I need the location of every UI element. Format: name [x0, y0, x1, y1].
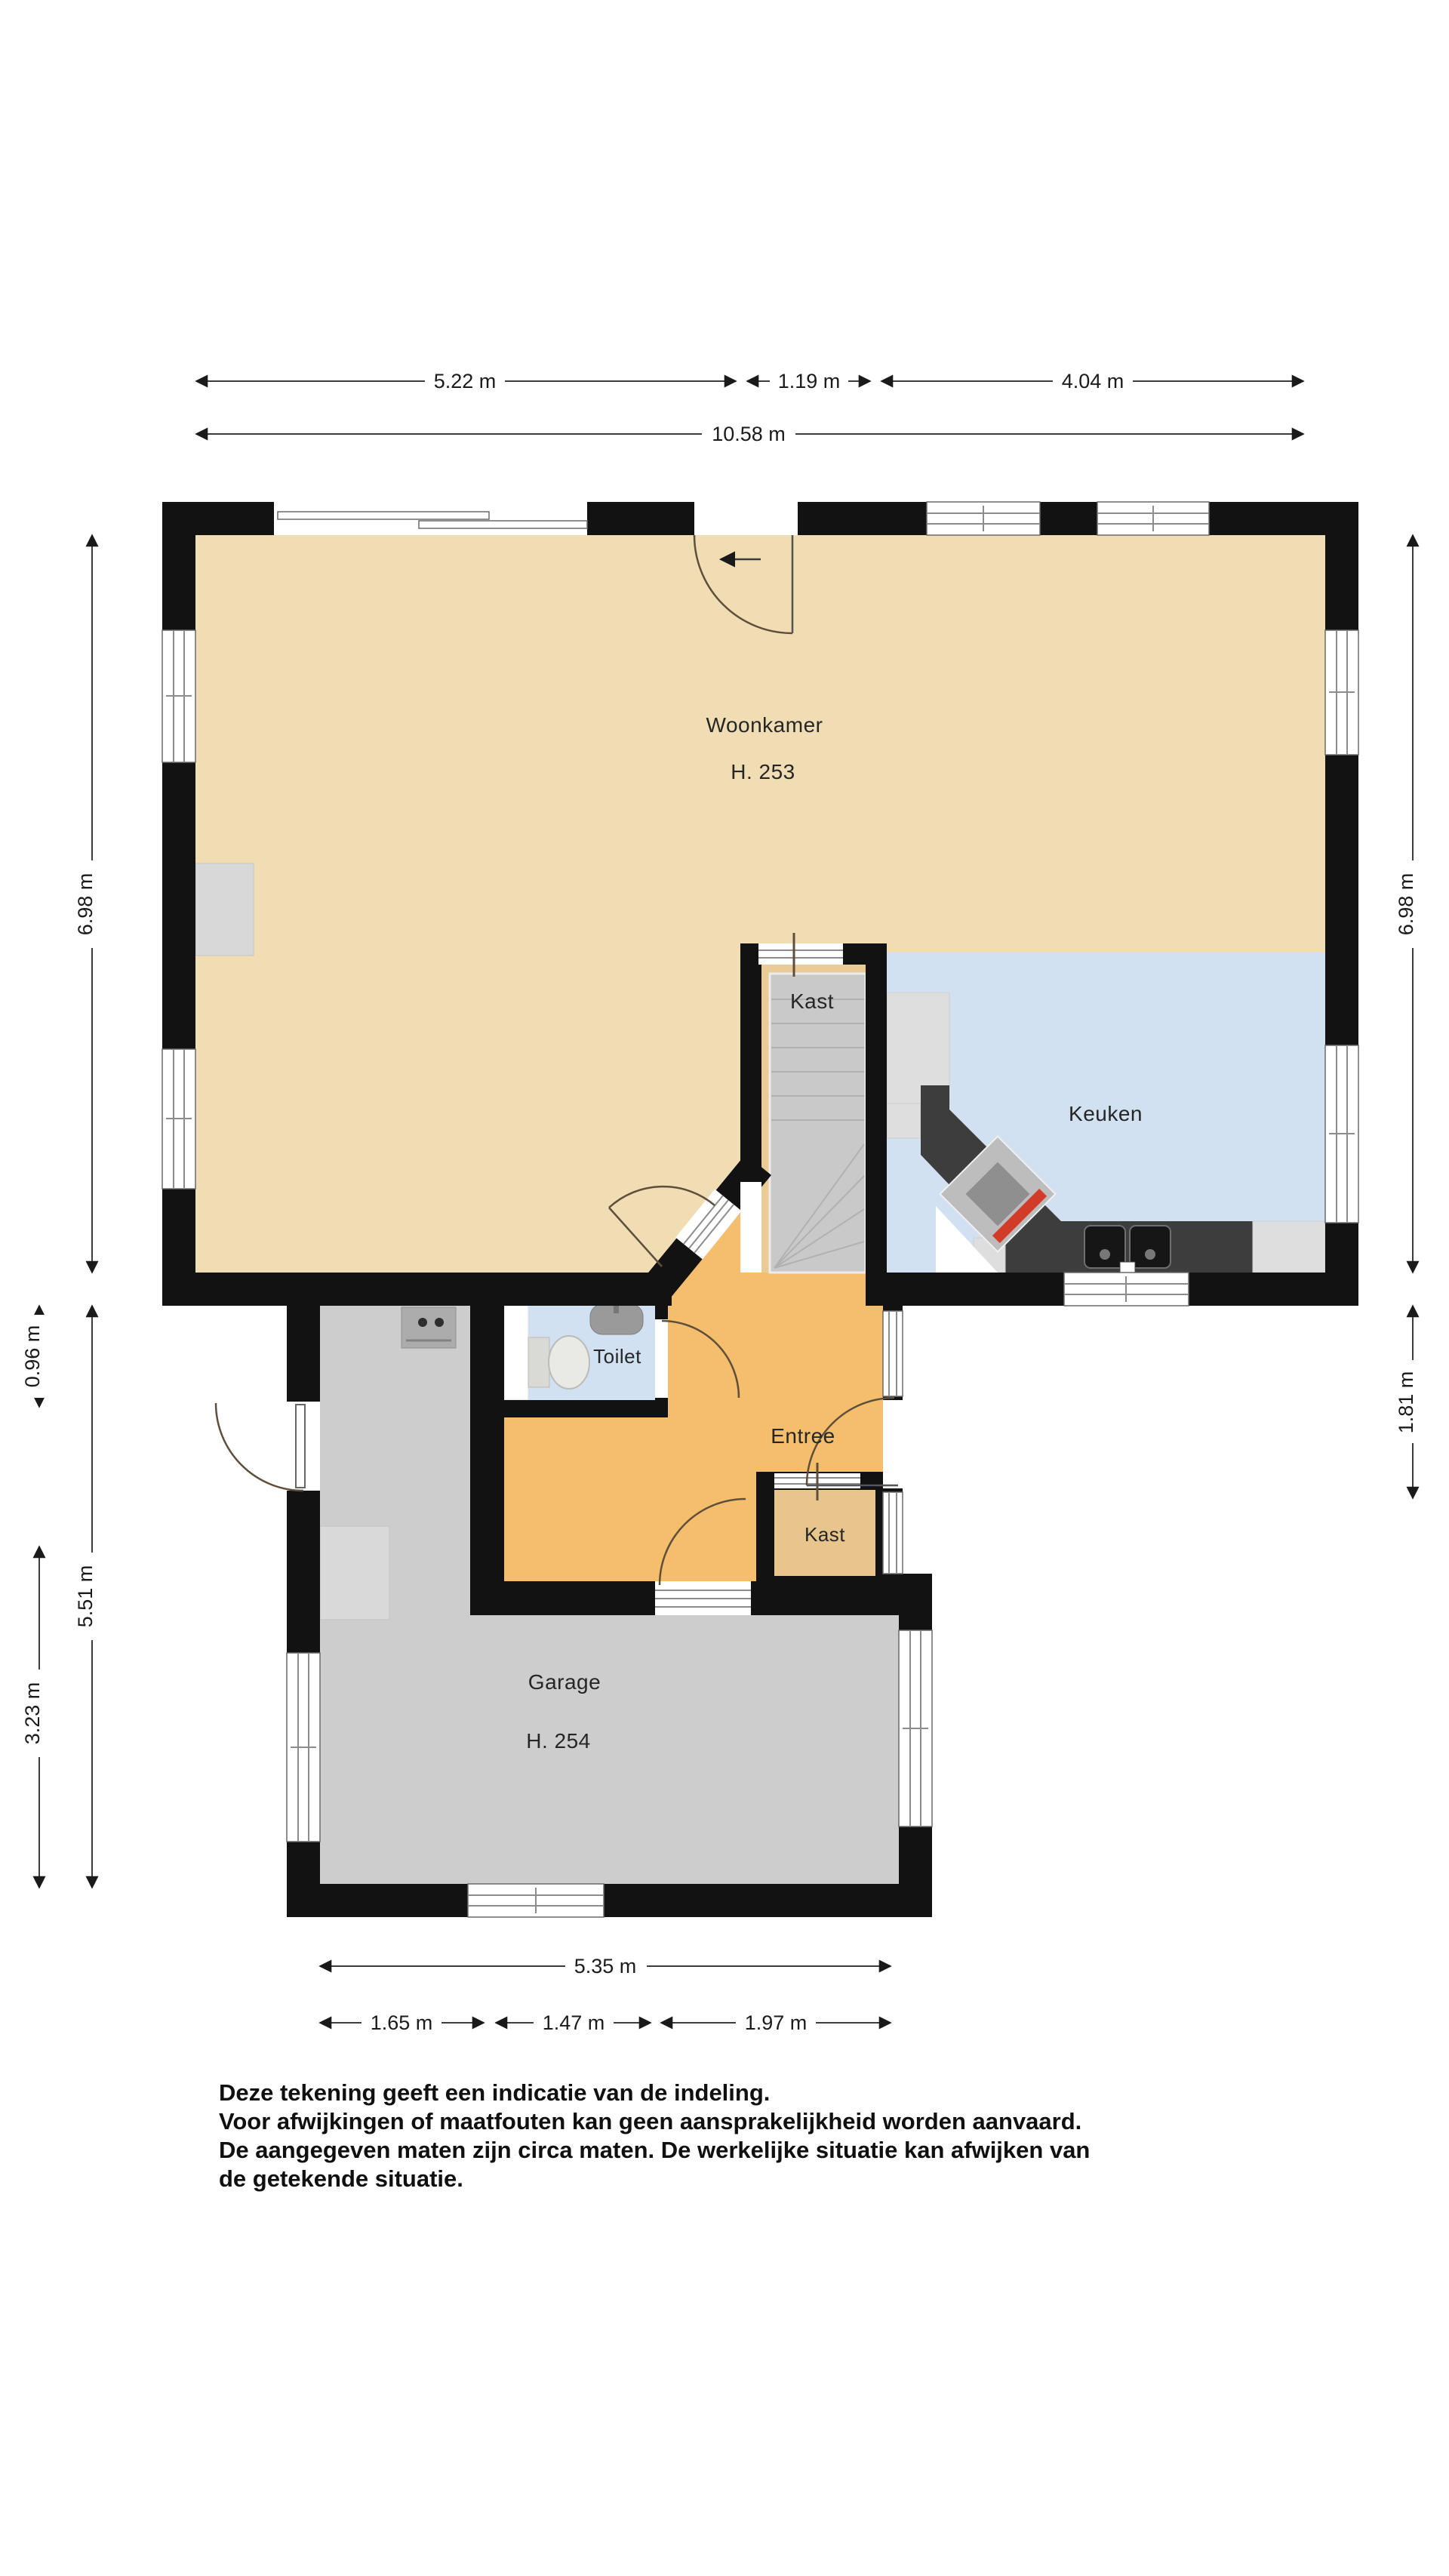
dim-right-upper: 6.98 m — [1395, 535, 1426, 1273]
stair-opening — [740, 1182, 761, 1273]
toilet-side-panel — [504, 1306, 528, 1400]
window-keuken-bottom — [1064, 1273, 1189, 1306]
dim-bottom-3: 1.97 m — [661, 2010, 891, 2036]
window-entree-right-1 — [883, 1311, 903, 1396]
wall-garage-bottom — [287, 1884, 932, 1917]
svg-text:1.97 m: 1.97 m — [745, 2011, 808, 2034]
svg-text:De aangegeven maten zijn circa: De aangegeven maten zijn circa maten. De… — [219, 2137, 1090, 2163]
dim-left-upper: 6.98 m — [74, 535, 105, 1273]
toilet-label: Toilet — [593, 1345, 641, 1368]
floorplan-page: Woonkamer H. 253 Keuken Kast Toilet Entr… — [0, 0, 1449, 2576]
wall-kast-right — [866, 943, 887, 1273]
keuken-label: Keuken — [1069, 1102, 1143, 1125]
dim-left-lower: 5.51 m — [74, 1306, 105, 1888]
fireplace-block — [195, 863, 254, 956]
svg-text:Voor afwijkingen of maatfoute: Voor afwijkingen of maatfouten kan geen … — [219, 2108, 1081, 2134]
svg-text:de getekende situatie.: de getekende situatie. — [219, 2165, 463, 2192]
dim-top-3: 4.04 m — [881, 368, 1303, 394]
dim-left-toilet: 0.96 m — [21, 1306, 52, 1407]
window-top-2 — [1097, 502, 1209, 535]
window-garage-bottom — [468, 1884, 604, 1917]
svg-text:4.04 m: 4.04 m — [1062, 370, 1124, 392]
svg-text:0.96 m: 0.96 m — [21, 1325, 44, 1388]
svg-text:6.98 m: 6.98 m — [74, 873, 97, 936]
kitchen-dishwasher — [1253, 1221, 1325, 1273]
svg-text:10.58 m: 10.58 m — [712, 423, 786, 445]
toilet-icon — [528, 1336, 589, 1389]
wall-kast-onder-bottom — [756, 1576, 899, 1615]
dim-top-2: 1.19 m — [747, 368, 870, 394]
wall-kast-onder-left — [756, 1472, 774, 1581]
dim-top-total: 10.58 m — [196, 421, 1303, 447]
svg-text:1.65 m: 1.65 m — [371, 2011, 433, 2034]
woonkamer-height-label: H. 253 — [731, 760, 795, 783]
door-garage-left — [216, 1402, 320, 1491]
kast-onder-label: Kast — [804, 1523, 845, 1546]
window-left-2 — [162, 1049, 195, 1189]
garage-height-label: H. 254 — [526, 1729, 591, 1753]
kitchen-cabinet-small — [887, 1103, 921, 1138]
window-right-1 — [1325, 630, 1358, 755]
dim-bottom-total: 5.35 m — [320, 1953, 891, 1979]
woonkamer-label: Woonkamer — [706, 713, 823, 737]
disclaimer-text: Deze tekening geeft een indicatie van de… — [219, 2079, 1090, 2192]
stairs — [770, 974, 866, 1273]
wall-toilet-bottom — [470, 1400, 668, 1417]
dim-left-garage: 3.23 m — [21, 1547, 52, 1888]
kast-boven-label: Kast — [790, 989, 834, 1013]
garage-label: Garage — [528, 1670, 601, 1694]
svg-text:1.81 m: 1.81 m — [1395, 1371, 1417, 1434]
svg-text:5.35 m: 5.35 m — [574, 1955, 637, 1977]
floorplan-drawing: Woonkamer H. 253 Keuken Kast Toilet Entr… — [0, 0, 1449, 2576]
window-right-2 — [1325, 1045, 1358, 1223]
svg-text:1.19 m: 1.19 m — [778, 370, 841, 392]
dim-top-1: 5.22 m — [196, 368, 736, 394]
window-entree-right-2 — [883, 1492, 903, 1574]
window-left-1 — [162, 630, 195, 762]
window-garage-left — [287, 1653, 320, 1842]
washer-icon — [401, 1307, 456, 1348]
dim-bottom-1: 1.65 m — [320, 2010, 484, 2036]
svg-text:Deze tekening geeft een indica: Deze tekening geeft een indicatie van de… — [219, 2079, 770, 2106]
dim-right-entree: 1.81 m — [1395, 1306, 1426, 1498]
wall-main-bottom-left — [162, 1273, 672, 1306]
wall-kast-left — [740, 943, 761, 1182]
svg-text:6.98 m: 6.98 m — [1395, 873, 1417, 936]
entree-label: Entree — [771, 1424, 835, 1448]
svg-text:5.22 m: 5.22 m — [434, 370, 497, 392]
svg-text:1.47 m: 1.47 m — [543, 2011, 605, 2034]
garage-storage-box — [320, 1526, 389, 1620]
dim-bottom-2: 1.47 m — [496, 2010, 651, 2036]
svg-text:5.51 m: 5.51 m — [74, 1565, 97, 1628]
window-garage-right — [899, 1630, 932, 1827]
window-top-1 — [927, 502, 1040, 535]
svg-text:3.23 m: 3.23 m — [21, 1682, 44, 1745]
